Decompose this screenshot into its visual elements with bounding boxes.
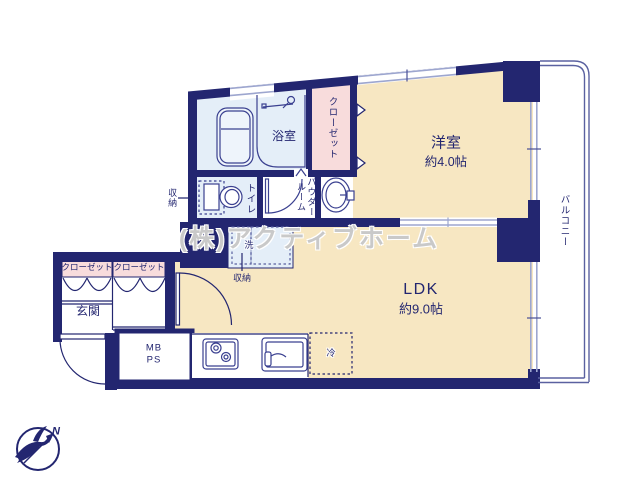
label-powder-room: パウダー ルーム (296, 177, 317, 217)
label-storage-hall: 収納 (233, 273, 251, 283)
label-ldk: LDK (403, 281, 439, 299)
label-ps: PS (147, 356, 162, 367)
label-closet-hall-1: クローゼット (61, 263, 112, 273)
wall-sanitary-left (188, 92, 197, 227)
entry-door (60, 334, 105, 384)
label-toilet: トイレ (244, 183, 255, 215)
watermark: (株)アクティブホーム (179, 219, 439, 255)
wall-closet-western (350, 80, 357, 177)
wall-pillar-mid-right (497, 218, 540, 262)
floor-plan: 浴室 クローゼット 洋室 約4.0帖 トイレ パウダー ルーム 収納 洗 収納 … (0, 0, 640, 480)
wall-sanitary-mid (197, 170, 357, 177)
label-western-room: 洋室 (431, 134, 461, 151)
label-western-room-size: 約4.0帖 (425, 155, 467, 169)
label-storage-toilet: 収納 (167, 188, 177, 208)
label-closet-main: クローゼット (326, 97, 337, 160)
wall-bath-closet (306, 85, 312, 174)
sink-icon (262, 338, 307, 371)
wash-basin-icon (322, 178, 354, 212)
wall-hall-top (53, 252, 180, 262)
label-closet-hall-2: クローゼット (113, 263, 164, 273)
wall-right-upper (528, 200, 540, 218)
compass-bird-icon (15, 426, 52, 463)
stove-icon (203, 339, 238, 369)
label-mb: MB (146, 344, 162, 355)
label-fridge: 冷 (326, 348, 335, 358)
closet-hall-1-scallops (63, 278, 111, 291)
label-balcony: バルコニー (558, 195, 569, 248)
bathtub-icon (217, 108, 253, 166)
label-bathroom: 浴室 (272, 130, 296, 144)
label-north: N (52, 426, 60, 439)
wall-pillar-top-right (503, 61, 540, 102)
wall-hall-right (165, 252, 175, 332)
closet-hall-2-scallops (114, 278, 165, 292)
label-ldk-size: 約9.0帖 (399, 303, 443, 318)
wall-toilet-right (257, 177, 263, 218)
label-genkan: 玄関 (76, 305, 100, 319)
